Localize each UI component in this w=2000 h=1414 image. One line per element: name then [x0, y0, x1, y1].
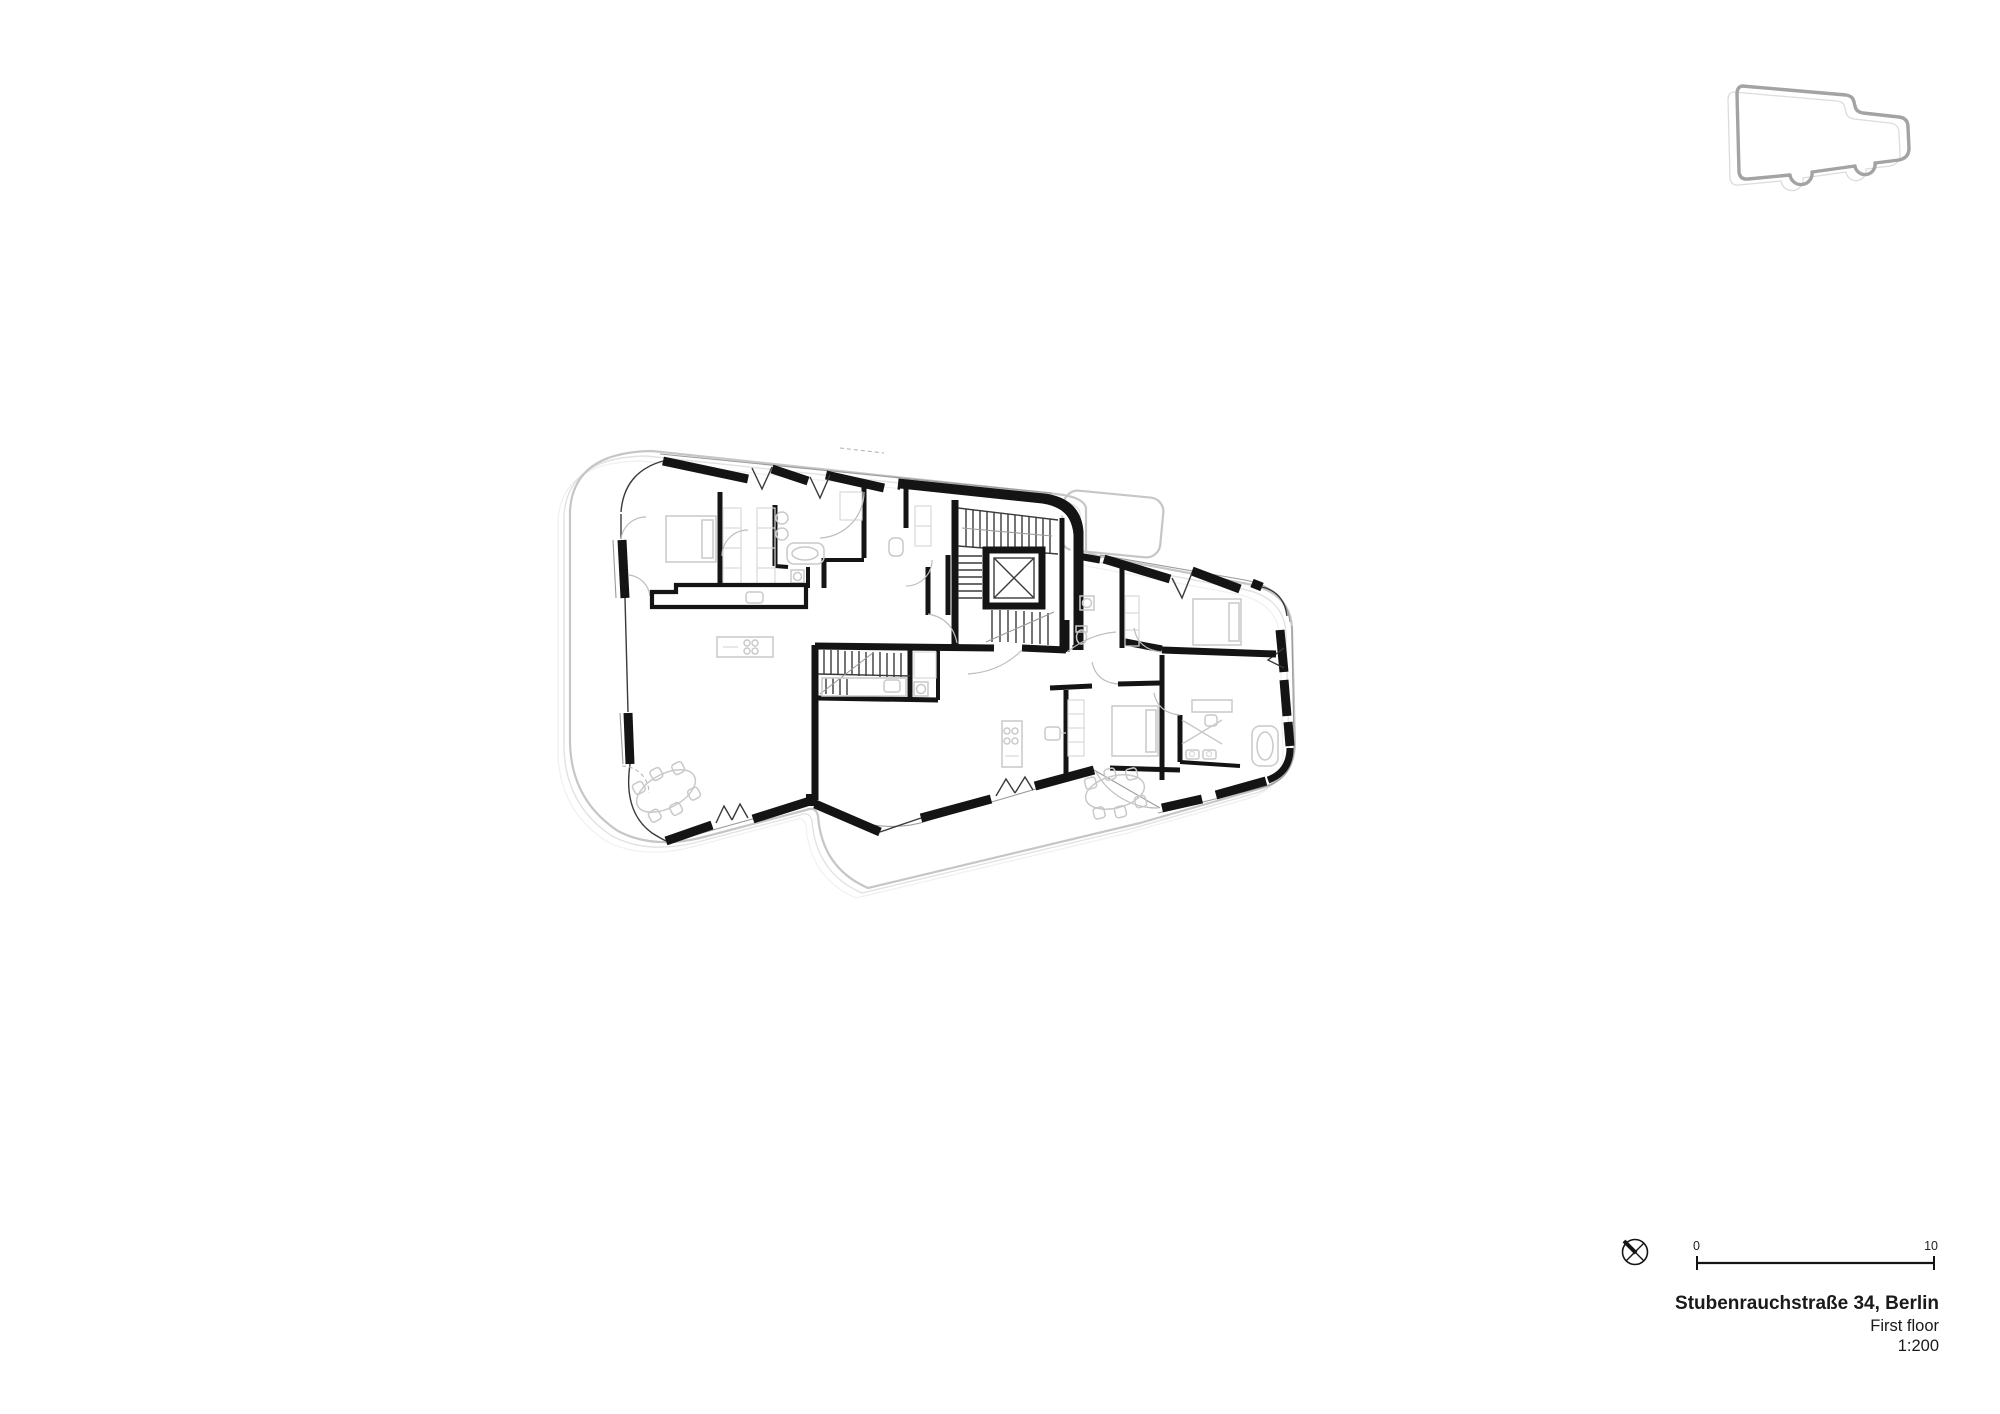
floor-plan-drawing: 0 10	[0, 0, 2000, 1414]
key-plan	[1728, 86, 1909, 191]
bed-3	[1193, 599, 1241, 645]
drawing-sheet: 0 10 Stubenrauchstraße 34, Berlin First …	[0, 0, 2000, 1414]
kitchen-counter	[652, 585, 806, 607]
window-band-left	[622, 540, 625, 598]
scale-start-label: 0	[1693, 1239, 1700, 1253]
bathtub	[787, 543, 824, 564]
bathtub-2	[1252, 726, 1278, 766]
stair-core	[958, 508, 1058, 645]
window-band-top	[663, 461, 748, 479]
project-title: Stubenrauchstraße 34, Berlin	[1675, 1292, 1939, 1316]
north-icon	[1623, 1240, 1648, 1265]
kitchen-island-2	[1002, 721, 1022, 767]
site-outline	[558, 451, 1295, 898]
title-block: Stubenrauchstraße 34, Berlin First floor…	[1675, 1292, 1939, 1356]
corridor-wall	[815, 641, 1276, 654]
bed	[666, 516, 716, 562]
scale-bar: 0 10	[1693, 1239, 1938, 1270]
scale-label: 1:200	[1675, 1336, 1939, 1356]
floor-label: First floor	[1675, 1316, 1939, 1336]
duplex-stair	[818, 650, 936, 696]
elevator	[986, 550, 1042, 606]
desk	[1192, 700, 1232, 726]
bed-2	[1112, 706, 1158, 756]
scale-end-label: 10	[1924, 1239, 1938, 1253]
kitchen-island	[717, 637, 773, 657]
window-band-bottom-left	[666, 825, 712, 841]
